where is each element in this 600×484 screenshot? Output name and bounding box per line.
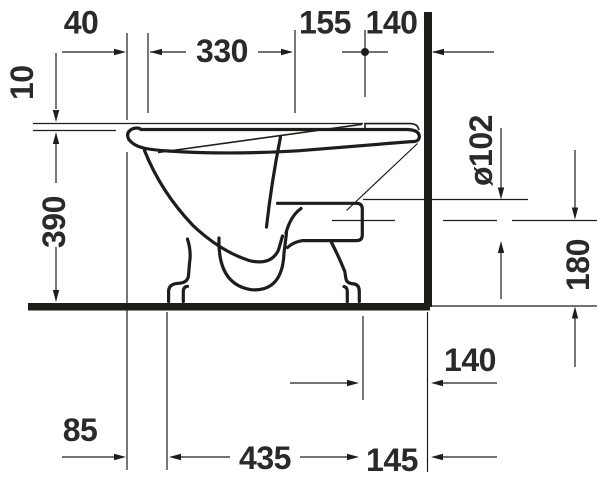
dimension-lines <box>33 30 597 472</box>
toilet-profile <box>128 124 420 302</box>
dimension-node-dot <box>361 48 369 56</box>
bowl-front-curve <box>145 151 283 262</box>
arrow-40-right <box>114 49 126 55</box>
dim-label-390: 390 <box>36 196 72 248</box>
arrowheads <box>53 48 578 460</box>
arrow-10-down <box>53 110 59 122</box>
seat-outline <box>128 128 420 153</box>
arrow-102-up <box>498 241 504 253</box>
arrow-435-right <box>347 454 359 460</box>
arrow-390-up <box>53 132 59 144</box>
toilet-dimension-drawing: 40 330 155 140 10 390 ø102 180 85 435 14… <box>0 0 600 484</box>
dim-label-330: 330 <box>196 33 248 69</box>
pedestal-front-foot <box>169 239 191 302</box>
dim-label-155: 155 <box>299 5 351 41</box>
dim-label-102: ø102 <box>463 115 499 186</box>
bowl-back-edge <box>347 144 418 211</box>
pedestal-back-foot <box>331 242 359 302</box>
arrow-180-up <box>572 307 578 319</box>
arrow-330-right <box>281 49 293 55</box>
arrow-140b-left <box>347 380 359 386</box>
arrow-180-down <box>572 208 578 220</box>
dim-label-180: 180 <box>560 239 596 291</box>
arrow-140b-right <box>431 380 443 386</box>
dim-label-40: 40 <box>64 5 99 41</box>
dim-label-140-bottom: 140 <box>444 342 496 378</box>
dim-label-140-top: 140 <box>366 5 418 41</box>
dim-label-10: 10 <box>4 65 40 100</box>
arrow-390-down <box>53 290 59 302</box>
front-foot-inner <box>183 286 187 301</box>
dim-label-435: 435 <box>239 440 291 476</box>
dim-label-85: 85 <box>63 412 98 448</box>
arrow-330-left <box>150 49 162 55</box>
arrow-145-right <box>431 454 443 460</box>
back-foot-inner <box>344 287 347 302</box>
arrow-102-down <box>498 188 504 200</box>
arrow-140top-wall <box>432 49 444 55</box>
trap-weir <box>286 209 301 234</box>
arrow-85-left <box>114 454 126 460</box>
technical-drawing-canvas: 40 330 155 140 10 390 ø102 180 85 435 14… <box>0 0 600 484</box>
dim-label-145: 145 <box>366 442 418 478</box>
arrow-85-435 <box>169 454 181 460</box>
